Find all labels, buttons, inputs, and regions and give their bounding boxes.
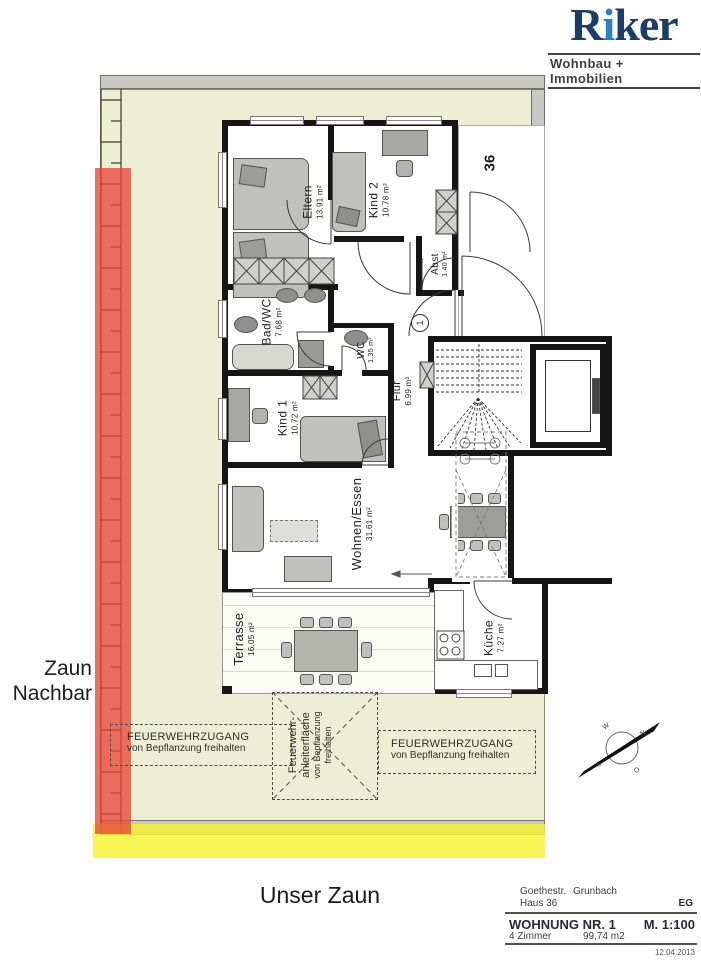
tb-city: Grunbach — [573, 886, 617, 897]
tb-house: Haus 36 — [520, 898, 557, 909]
floor-plan-page: N O S W Eltern 13.91 m² Kind 2 10.78 m² … — [0, 0, 701, 960]
unser-zaun-label: Unser Zaun — [160, 882, 480, 909]
fire-ladder-label: Feuerwehr- anleiterfläche von Bepflanzun… — [287, 711, 333, 778]
tb-date: 12.04.2013 — [655, 948, 695, 957]
tb-area: 99,74 m2 — [583, 931, 625, 942]
tb-scale: M. 1:100 — [644, 917, 695, 932]
riker-logo: Riker Wohnbau + Immobilien — [548, 0, 700, 89]
fire-ladder-diagonals — [0, 0, 701, 960]
tb-floor: EG — [679, 898, 693, 909]
tb-street: Goethestr. — [520, 886, 566, 897]
riker-wordmark: Riker — [548, 0, 700, 51]
title-block: Goethestr. Grunbach Haus 36 EG WOHNUNG N… — [505, 882, 697, 958]
tb-unit: WOHNUNG NR. 1 — [509, 917, 616, 932]
logo-tagline: Wohnbau + Immobilien — [548, 55, 700, 87]
tb-rooms: 4 Zimmer — [509, 931, 551, 942]
zaun-nachbar-label: Zaun Nachbar — [0, 656, 92, 706]
